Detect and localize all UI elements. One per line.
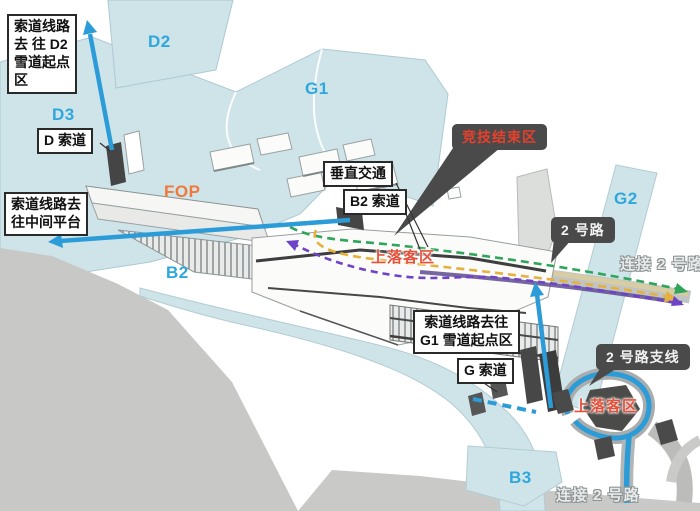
d2-route-annotation: 索道线路 去 往 D2 雪道起点 区: [7, 14, 77, 94]
annotation-label: G 索道: [464, 362, 507, 378]
b2-cable-annotation: B2 索道: [343, 189, 407, 215]
annotation-label: 垂直交通: [330, 165, 386, 181]
road-2-callout: 2 号路: [551, 217, 615, 243]
pickup-dropoff-label-lower: 上落客区: [574, 395, 638, 416]
callout-label: 2 号路: [561, 222, 605, 238]
pickup-dropoff-label-upper: 上落客区: [371, 246, 435, 267]
annotation-line: 索道线路: [14, 18, 70, 36]
vertical-transport-annotation: 垂直交通: [323, 161, 393, 187]
annotation-label: D 索道: [44, 132, 86, 148]
zone-label-d2: D2: [148, 32, 171, 52]
map-illustration: [0, 0, 700, 511]
callout-label: 竞技结束区: [462, 129, 537, 145]
connect-road-2-label-bottom: 连接 2 号路: [556, 484, 640, 505]
annotation-line: 雪道起点: [14, 54, 70, 72]
zone-label-b2: B2: [166, 263, 189, 283]
venue-transport-map: 索道线路 去 往 D2 雪道起点 区 D 索道 索道线路去 往中间平台 垂直交通…: [0, 0, 700, 511]
zone-label-b3: B3: [509, 468, 532, 488]
d-cable-route-arrowhead: [83, 20, 97, 35]
zone-label-g1: G1: [305, 79, 329, 99]
annotation-line: 索道线路去往: [420, 314, 513, 332]
annotation-line: 索道线路去: [11, 196, 81, 214]
road-2-branch-callout: 2 号路支线: [596, 344, 690, 370]
zone-label-d3: D3: [52, 105, 75, 125]
mid-platform-annotation: 索道线路去 往中间平台: [4, 192, 88, 236]
finish-zone-callout: 竞技结束区: [452, 124, 547, 150]
g-cable-annotation: G 索道: [457, 358, 514, 384]
d-cable-annotation: D 索道: [37, 128, 93, 154]
zone-label-g2: G2: [614, 189, 638, 209]
zone-label-fop: FOP: [164, 182, 200, 202]
g1-route-annotation: 索道线路去往 G1 雪道起点区: [413, 310, 520, 354]
annotation-line: 往中间平台: [11, 214, 81, 232]
connect-road-2-label-right: 连接 2 号路: [620, 253, 700, 274]
annotation-line: 区: [14, 72, 70, 90]
callout-label: 2 号路支线: [606, 349, 680, 365]
annotation-line: G1 雪道起点区: [420, 332, 513, 350]
annotation-line: 去 往 D2: [14, 36, 70, 54]
annotation-label: B2 索道: [350, 193, 400, 209]
